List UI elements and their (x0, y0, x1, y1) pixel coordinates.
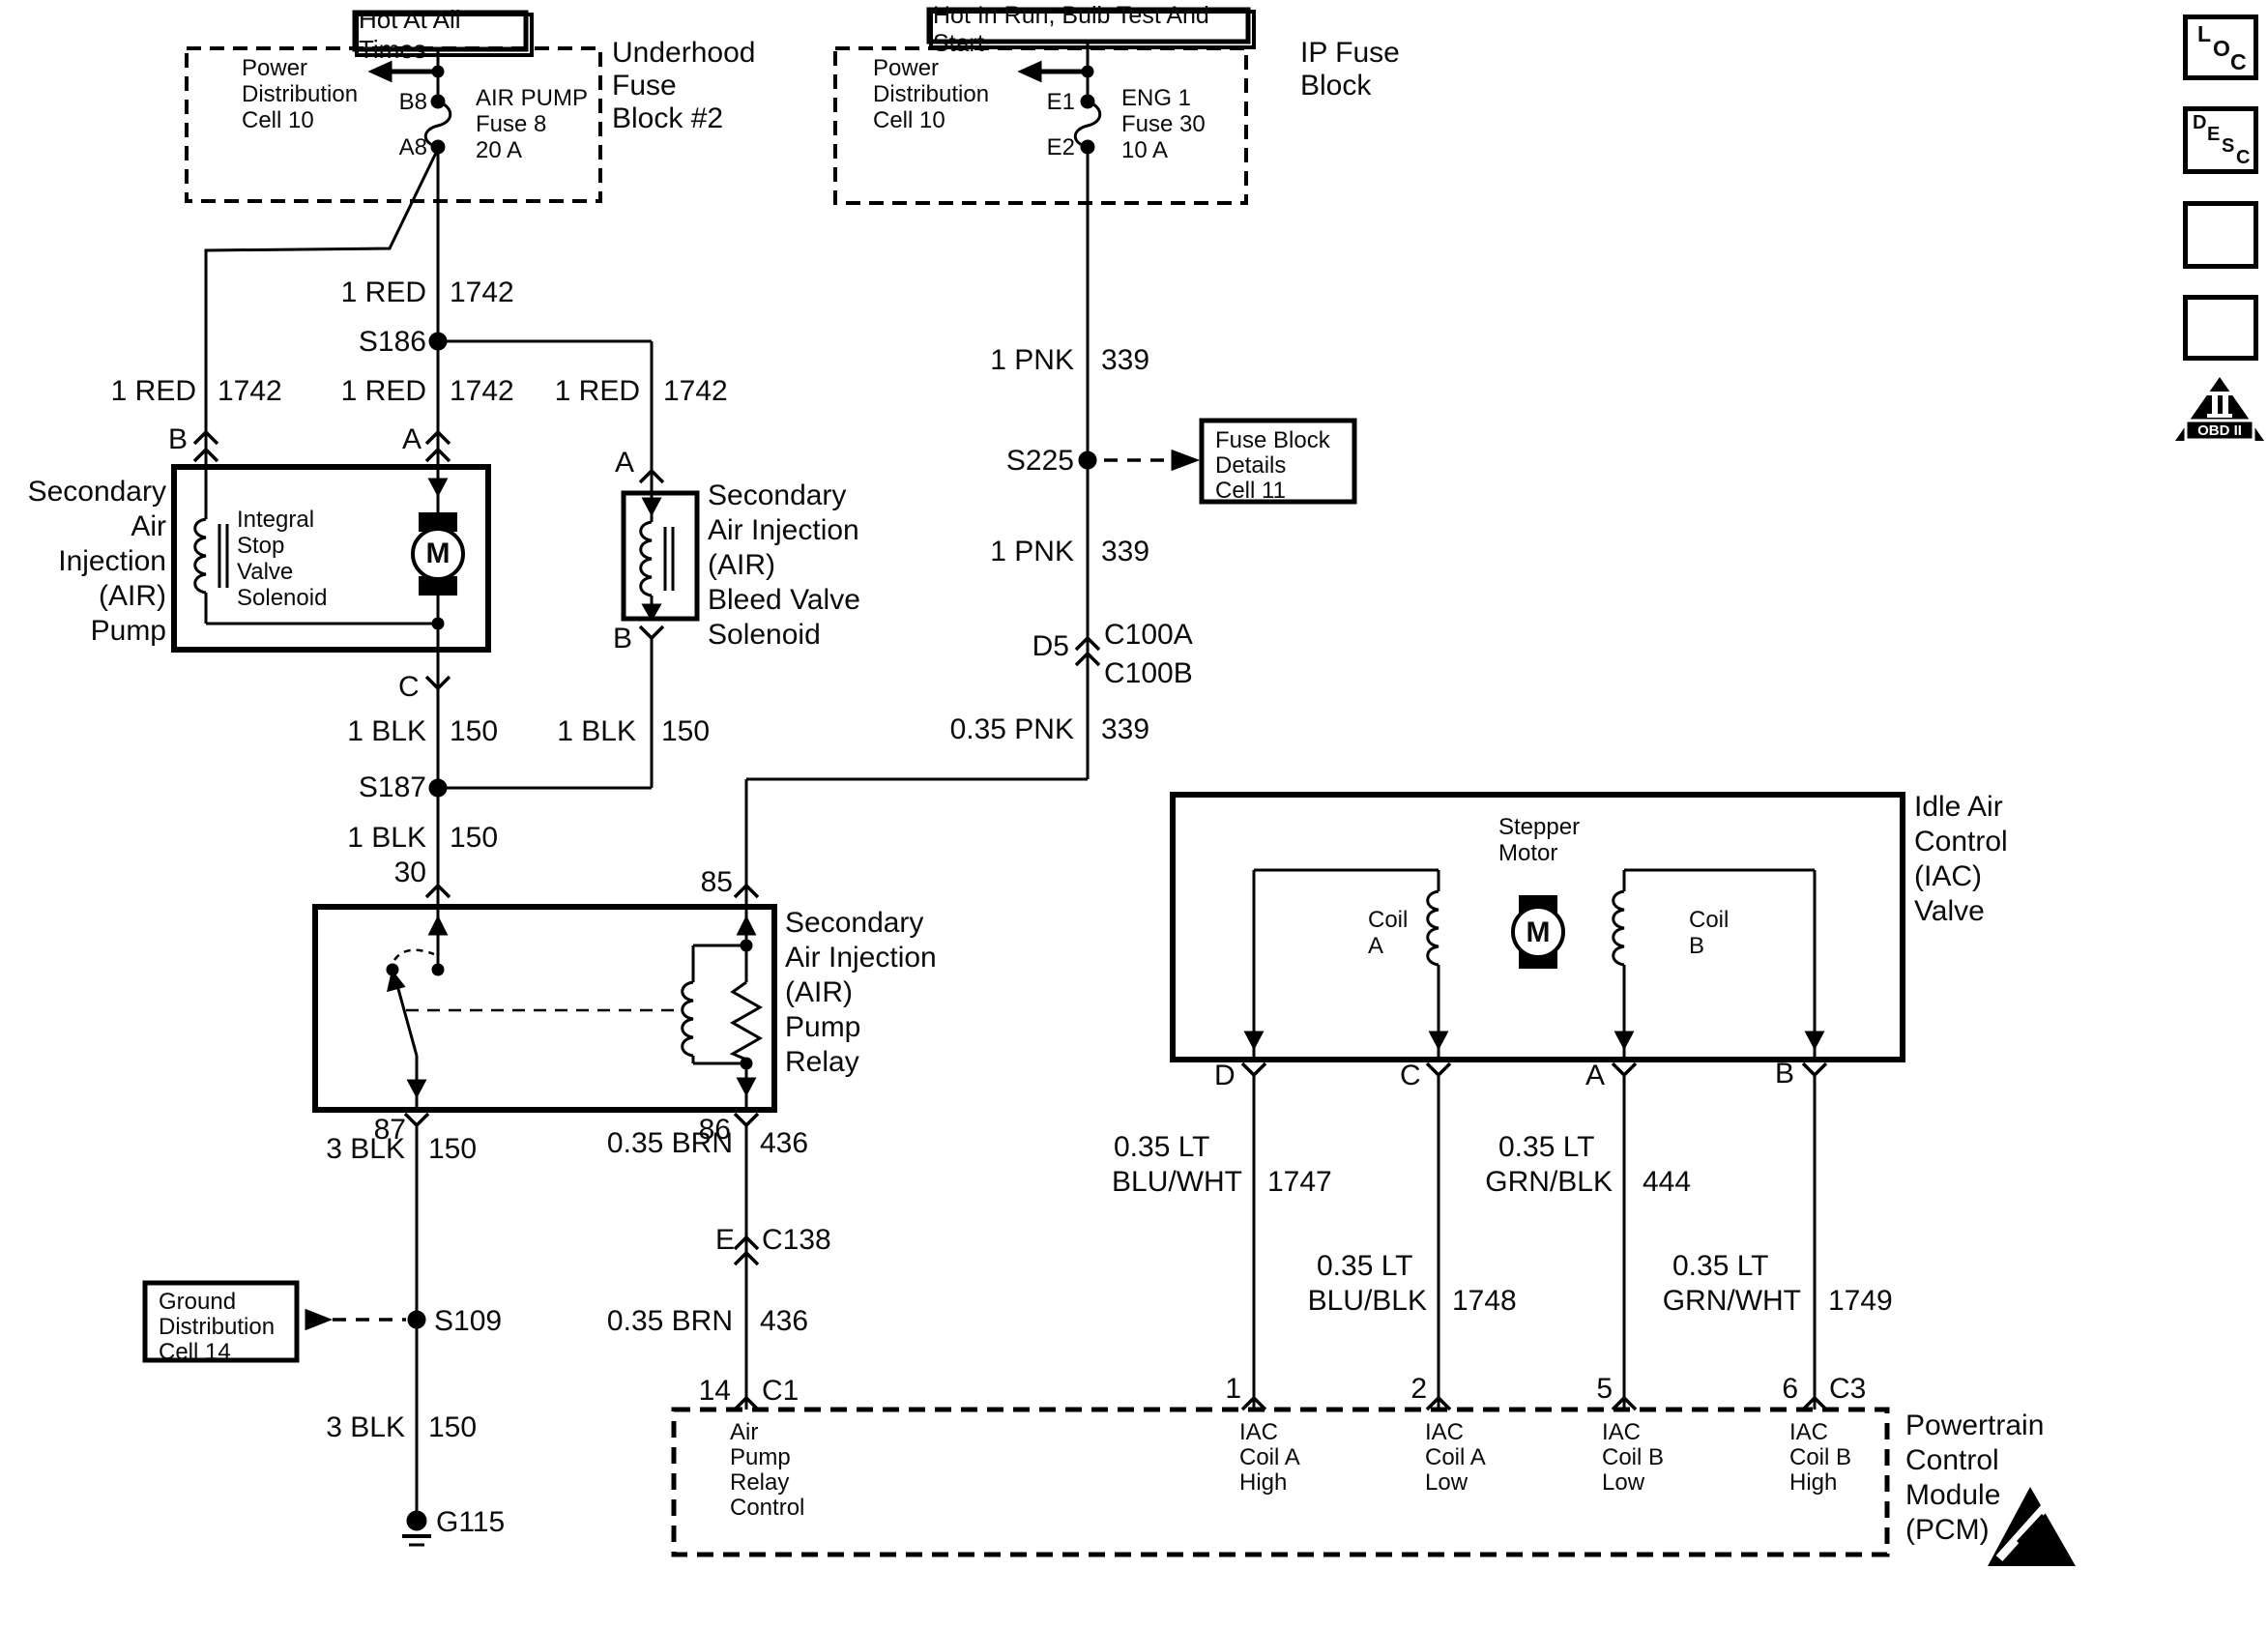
relay-label: Pump (785, 1011, 860, 1044)
air-pump-relay-box (315, 907, 774, 1110)
relay-control-wiring (735, 1125, 758, 1410)
wire-label: BLU/BLK (1282, 1285, 1427, 1318)
power-dist-line: Cell 10 (242, 107, 314, 133)
bleed-pin-b: B (613, 623, 632, 655)
desc-letter: S (2222, 135, 2234, 158)
bleed-solenoid-box (624, 493, 697, 619)
pcm-conn-c3: C3 (1829, 1373, 1866, 1406)
back-button[interactable] (2183, 295, 2258, 361)
fuse-name: AIR PUMP (476, 85, 588, 111)
solenoid-coil-icon (195, 519, 206, 593)
solenoid-label: Solenoid (237, 585, 327, 611)
pump-label: Air (0, 510, 166, 543)
pump-pin-a: A (402, 423, 422, 456)
iac-pcm-wiring (1242, 1063, 1826, 1410)
solenoid-label: Stop (237, 533, 284, 559)
wire-code: 339 (1101, 536, 1149, 568)
wire-label: GRN/BLK (1468, 1166, 1613, 1199)
desc-letter: D (2193, 112, 2206, 134)
wire-label: 1 PNK (977, 536, 1074, 568)
power-dist-line: Distribution (242, 81, 358, 107)
wire-code: 1749 (1828, 1285, 1893, 1318)
pcm-function: Air (730, 1419, 758, 1445)
bleed-label: (AIR) (708, 549, 775, 582)
wire-label: 0.35 BRN (588, 1127, 733, 1160)
desc-letter: E (2207, 124, 2220, 146)
pcm-pin-5: 5 (1564, 1373, 1613, 1406)
iac-label: Control (1914, 826, 2008, 858)
ref-line: Cell 14 (159, 1339, 231, 1365)
pcm-function: Pump (730, 1444, 791, 1470)
wire-label: 0.35 LT (1498, 1131, 1595, 1164)
pcm-function: High (1789, 1469, 1837, 1496)
solenoid-label: Valve (237, 559, 293, 585)
wire-label: 1 BLK (330, 822, 426, 855)
wire-code: 150 (450, 715, 498, 748)
ground-branch-wiring (306, 1125, 431, 1545)
power-dist-line: Power (242, 55, 307, 81)
wire-label: 1 BLK (539, 715, 636, 748)
bleed-label: Secondary (708, 480, 846, 512)
relay-label: (AIR) (785, 976, 853, 1009)
pcm-pin-14: 14 (683, 1375, 731, 1408)
obd2-label: OBD II (2186, 422, 2253, 440)
coil-a-label: A (1368, 933, 1383, 959)
wire-code: 1742 (450, 276, 514, 309)
wire-label: GRN/WHT (1656, 1285, 1801, 1318)
pump-label: Pump (0, 615, 166, 648)
terminal-b8: B8 (387, 89, 427, 115)
pcm-function: Coil A (1425, 1444, 1486, 1470)
iac-internals (1246, 870, 1822, 1060)
splice-s186-label: S186 (330, 326, 426, 359)
connector-c100b: C100B (1104, 657, 1193, 690)
pcm-function: Coil A (1239, 1444, 1300, 1470)
switch-throw-arc (394, 950, 434, 960)
air-pump-internals (195, 467, 463, 688)
power-dist-line: Cell 10 (873, 107, 945, 133)
coil-b-label: Coil (1689, 907, 1729, 933)
ground-g115-label: G115 (436, 1506, 505, 1539)
terminal-a8: A8 (387, 134, 427, 160)
coil-b-label: B (1689, 933, 1704, 959)
motor-m-label: M (419, 538, 457, 570)
fuse-block-details-ref[interactable]: Fuse Block Details Cell 11 (1202, 421, 1354, 502)
bleed-label: Bleed Valve (708, 584, 860, 617)
fuse-number: Fuse 30 (1121, 111, 1206, 137)
wire-label: 1 RED (330, 276, 426, 309)
splice-s225-label: S225 (977, 445, 1074, 478)
relay-label: Relay (785, 1046, 859, 1079)
desc-button[interactable]: D E S C (2183, 106, 2258, 174)
stepper-label: Stepper (1498, 814, 1580, 840)
iac-pin-d: D (1214, 1060, 1236, 1092)
ref-arrow-icon (1173, 451, 1196, 469)
wire-label: 0.35 LT (1114, 1131, 1210, 1164)
connector-c138: C138 (762, 1224, 831, 1257)
relay-resistor-icon (733, 982, 760, 1060)
connector-d5: D5 (1005, 630, 1069, 663)
relay-internals (388, 907, 760, 1125)
fuse-rating: 20 A (476, 137, 522, 163)
wire-label: 1 BLK (330, 715, 426, 748)
ref-line: Cell 11 (1215, 478, 1286, 504)
relay-pin-85: 85 (684, 866, 733, 899)
pcm-function: IAC (1239, 1419, 1278, 1445)
pcm-function: IAC (1789, 1419, 1828, 1445)
iac-label: Idle Air (1914, 791, 2003, 824)
wire-code: 1748 (1452, 1285, 1517, 1318)
splice-s225-dot (1080, 452, 1095, 468)
hot-in-run-banner: Hot In Run, Bulb Test And Start (929, 10, 1256, 49)
esd-warning-icon (1988, 1487, 2076, 1566)
wire-code: 150 (450, 822, 498, 855)
pcm-function: IAC (1425, 1419, 1464, 1445)
left-arrow-icon (1021, 63, 1040, 80)
pcm-label: (PCM) (1905, 1514, 1990, 1547)
relay-pin-30: 30 (378, 857, 426, 889)
ref-line: Details (1215, 452, 1286, 479)
relay-label: Secondary (785, 907, 923, 940)
pcm-function: Low (1425, 1469, 1468, 1496)
solenoid-label: Integral (237, 507, 314, 533)
relay-label: Air Injection (785, 942, 937, 974)
wire-label: 0.35 LT (1672, 1250, 1769, 1283)
splice-s187-dot (430, 780, 446, 796)
ip-block-label: Block (1300, 70, 1371, 102)
wire-code: 1742 (663, 375, 728, 408)
pump-label: (AIR) (0, 580, 166, 613)
ground-dist-ref[interactable]: Ground Distribution Cell 14 (145, 1283, 297, 1360)
ip-block-label: IP Fuse (1300, 37, 1400, 70)
pcm-pin-6: 6 (1750, 1373, 1798, 1406)
wire-code: 444 (1643, 1166, 1691, 1199)
wire-label: 1 RED (330, 375, 426, 408)
iac-coil-a-icon (1428, 891, 1439, 965)
underhood-block-label: Underhood (612, 37, 755, 70)
hot-label: Hot In Run, Bulb Test And Start (933, 2, 1252, 58)
pcm-pin-1: 1 (1193, 1373, 1241, 1406)
iac-pin-a: A (1585, 1060, 1605, 1092)
fuse-rating: 10 A (1121, 137, 1168, 163)
bleed-pin-a: A (615, 447, 634, 480)
wiring-diagram-page: Hot At All Times Power Distribution Cell… (0, 0, 2268, 1628)
pcm-conn-c1: C1 (762, 1375, 799, 1408)
wire-label: 1 RED (100, 375, 196, 408)
pump-ground-wiring (426, 688, 450, 907)
ref-line: Fuse Block (1215, 427, 1330, 453)
pcm-label: Powertrain (1905, 1410, 2044, 1442)
wire-label: 0.35 PNK (929, 713, 1074, 746)
ip-feed-wiring (735, 42, 1196, 907)
fuse-name: ENG 1 (1121, 85, 1191, 111)
bleed-pin-b-chevron-icon (640, 626, 663, 638)
loc-letter: L (2197, 21, 2211, 47)
iac-pin-chevrons-icon (1242, 1063, 1826, 1075)
iac-label: (IAC) (1914, 860, 1982, 893)
wire-code: 1742 (450, 375, 514, 408)
wire-code: 1742 (218, 375, 282, 408)
terminal-e1: E1 (1032, 89, 1075, 115)
pcm-function: Control (730, 1495, 804, 1521)
pump-label: Secondary (0, 476, 166, 509)
desc-letter: C (2236, 147, 2250, 169)
connector-e: E (686, 1224, 735, 1257)
wire-label: 0.35 BRN (588, 1305, 733, 1338)
wire-code: 150 (428, 1133, 477, 1166)
iac-label: Valve (1914, 895, 1985, 928)
wire-code: 339 (1101, 344, 1149, 377)
wire-code: 436 (760, 1127, 808, 1160)
iac-pin-b: B (1775, 1058, 1794, 1090)
ref-arrow-icon (306, 1311, 329, 1328)
pcm-function: High (1239, 1469, 1287, 1496)
ground-g115-dot (408, 1512, 425, 1529)
loc-letter: O (2213, 36, 2230, 62)
pcm-label: Module (1905, 1479, 2000, 1512)
pcm-function: Coil B (1602, 1444, 1664, 1470)
pump-label: Injection (0, 545, 166, 578)
pin-87-chevron-icon (405, 1114, 428, 1125)
bleed-label: Solenoid (708, 619, 821, 652)
splice-s187-label: S187 (330, 771, 426, 804)
underhood-block-label: Fuse (612, 70, 677, 102)
wire-label: 1 RED (543, 375, 640, 408)
pin-86-chevron-icon (735, 1114, 758, 1125)
loc-letter: C (2230, 49, 2247, 75)
wire-label: BLU/WHT (1097, 1166, 1242, 1199)
iac-pin-c: C (1400, 1060, 1421, 1092)
splice-s109-label: S109 (434, 1305, 502, 1338)
loc-button[interactable]: L O C (2183, 15, 2258, 80)
terminal-e2: E2 (1032, 134, 1075, 160)
switch-arm (395, 978, 417, 1056)
forward-button[interactable] (2183, 201, 2258, 269)
pump-pin-c: C (398, 671, 420, 704)
wire-code: 339 (1101, 713, 1149, 746)
splice-s109-dot (409, 1312, 424, 1327)
bleed-label: Air Injection (708, 514, 859, 547)
connector-c100a: C100A (1104, 619, 1193, 652)
left-arrow-icon (371, 63, 391, 80)
wire-label: 0.35 LT (1317, 1250, 1413, 1283)
power-dist-line: Distribution (873, 81, 989, 107)
ref-line: Distribution (159, 1314, 275, 1340)
wire-code: 436 (760, 1305, 808, 1338)
pcm-function: IAC (1602, 1419, 1641, 1445)
pcm-function: Low (1602, 1469, 1644, 1496)
wire-label: 3 BLK (308, 1133, 405, 1166)
motor-m-label: M (1519, 916, 1557, 949)
pcm-pin-2: 2 (1379, 1373, 1427, 1406)
wire-code: 1747 (1267, 1166, 1332, 1199)
hot-label: Hot At All Times (359, 5, 530, 65)
wire-code: 150 (661, 715, 710, 748)
pump-pin-b: B (168, 423, 188, 456)
coil-a-label: Coil (1368, 907, 1408, 933)
wire-label: 3 BLK (308, 1411, 405, 1444)
pcm-function: Coil B (1789, 1444, 1851, 1470)
power-dist-line: Power (873, 55, 939, 81)
bleed-coil-icon (641, 522, 652, 596)
wire-code: 150 (428, 1411, 477, 1444)
iac-coil-b-icon (1614, 891, 1624, 965)
wire-label: 1 PNK (977, 344, 1074, 377)
underhood-block-label: Block #2 (612, 102, 723, 135)
ref-line: Ground (159, 1289, 236, 1315)
pcm-function: Relay (730, 1469, 789, 1496)
stepper-label: Motor (1498, 840, 1557, 866)
relay-coil-icon (683, 982, 693, 1056)
hot-at-all-times-banner: Hot At All Times (355, 13, 534, 57)
fuse-number: Fuse 8 (476, 111, 546, 137)
pcm-label: Control (1905, 1444, 1999, 1477)
